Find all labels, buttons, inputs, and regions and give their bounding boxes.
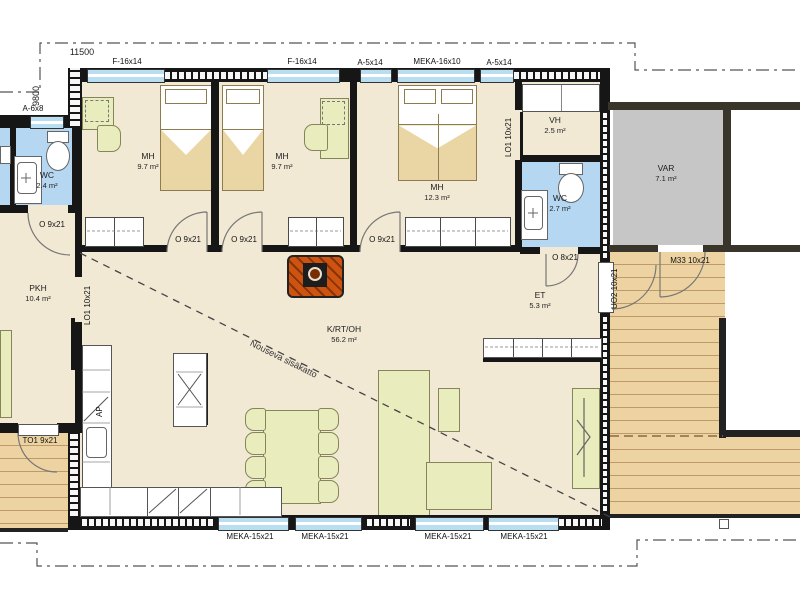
deck-left (0, 433, 68, 530)
desk-mh2-detail (322, 101, 345, 125)
chair-mh2 (304, 124, 328, 151)
pkh-slider-opening (75, 277, 82, 322)
closet-mh3 (405, 217, 511, 247)
var-wall-right (723, 102, 731, 252)
window-top-3 (360, 69, 392, 83)
room-label-krtoh: K/RT/OH 56.2 m² (316, 324, 372, 345)
dining-chair (318, 408, 339, 431)
closet-mh2 (288, 217, 344, 247)
room-name: VAR (640, 163, 692, 174)
deck-right-border (610, 514, 800, 518)
room-label-mh3: MH 12.3 m² (410, 182, 464, 203)
dishwasher-label: AP (95, 406, 104, 417)
room-name: MH (124, 151, 172, 162)
window-label-top-2: F-16x14 (272, 57, 332, 66)
window-label-bottom-4: MEKA-15x21 (492, 532, 556, 541)
door-label-pkh-slider: LO1 10x21 (83, 286, 92, 325)
toilet-bowl-left (46, 141, 70, 171)
wc-left-right-wall (72, 115, 82, 213)
side-table (438, 388, 460, 432)
insulation-bottom-3 (557, 517, 602, 528)
terrace-door-leaf (18, 424, 59, 436)
room-area: 7.1 m² (640, 174, 692, 184)
insulation-right-2 (601, 315, 609, 513)
insulation-bottom-1 (80, 517, 215, 528)
door-label-pkh: O 9x21 (30, 220, 74, 229)
door-label-wc-right: O 8x21 (543, 253, 587, 262)
room-area: 2.4 m² (23, 181, 71, 191)
vh-wc-wall (520, 155, 600, 162)
dining-chair (245, 456, 266, 479)
bed-mh3 (398, 85, 477, 181)
insulation-bottom-2 (365, 517, 410, 528)
kitchen-counter-left (82, 345, 112, 489)
door-label-terrace: TO1 9x21 (18, 436, 62, 445)
window-label-bottom-2: MEKA-15x21 (293, 532, 357, 541)
room-name: WC (536, 193, 584, 204)
room-area: 9.7 m² (124, 162, 172, 172)
closet-mh1 (85, 217, 144, 247)
floor-plan: 11500 9800 F-16x14 F-16x14 A-5x14 MEKA-1… (0, 0, 800, 600)
sofa-horizontal (426, 462, 492, 510)
window-label-top-3: A-5x14 (347, 58, 393, 67)
pkh-floor (0, 205, 82, 435)
deck-left-border (0, 528, 68, 532)
room-name: K/RT/OH (316, 324, 372, 335)
pillow (226, 89, 260, 104)
deck-edge-horizontal (719, 430, 800, 437)
stove-icon (303, 263, 327, 287)
window-label-top-1: F-16x14 (97, 57, 157, 66)
dining-chair (318, 456, 339, 479)
room-label-et: ET 5.3 m² (514, 290, 566, 311)
room-label-wc-left: WC 2.4 m² (23, 170, 71, 191)
dining-chair (318, 480, 339, 503)
window-label-left: A-6x8 (8, 104, 58, 113)
dimension-height: 9800 (31, 86, 41, 106)
insulation-top-2 (512, 70, 600, 81)
kitchen-island (173, 353, 207, 427)
bed-mh2 (222, 85, 264, 191)
room-label-vh: VH 2.5 m² (531, 115, 579, 136)
deck-left-side-wall (68, 433, 80, 518)
fireplace (287, 255, 344, 298)
window-top-2 (267, 69, 340, 83)
kitchen-appliance-2 (178, 487, 211, 517)
room-name: MH (258, 151, 306, 162)
door-label-mh3: O 9x21 (362, 235, 402, 244)
room-name: PKH (12, 283, 64, 294)
var-wall-top (608, 102, 800, 110)
window-bottom-1 (218, 517, 289, 531)
kitchen-appliance-1 (147, 487, 180, 517)
door-label-entry: UO2 10x21 (610, 269, 619, 309)
door-label-vh-slider: LO1 10x21 (504, 118, 513, 157)
exterior-wall-corner-nw (68, 68, 82, 128)
pkh-door-opening (28, 205, 68, 213)
tv-bench (572, 388, 600, 489)
room-area: 2.5 m² (531, 126, 579, 136)
room-label-wc-right: WC 2.7 m² (536, 193, 584, 214)
vh-slider-leaf (520, 112, 523, 160)
window-bottom-3 (415, 517, 484, 531)
kitchen-sink (86, 427, 107, 458)
window-top-5 (480, 69, 514, 83)
window-label-bottom-1: MEKA-15x21 (218, 532, 282, 541)
window-left-a6x8 (30, 116, 64, 129)
bed-mh1 (160, 85, 212, 191)
desk-mh1-detail (85, 100, 109, 122)
pillow (441, 89, 473, 104)
west-inner-wall-lower (75, 322, 82, 425)
door-label-var: M33 10x21 (664, 256, 716, 265)
window-label-top-4: MEKA-16x10 (405, 57, 469, 66)
deck-right-lower (610, 437, 800, 517)
pillow (165, 89, 207, 104)
mh2-mh3-wall (350, 82, 357, 245)
deck-right-upper (610, 252, 725, 437)
site-line-bottom (0, 540, 800, 566)
room-area: 2.7 m² (536, 204, 584, 214)
var-door-opening (658, 245, 703, 252)
pkh-bottom-wall-b (57, 423, 82, 433)
room-name: MH (410, 182, 464, 193)
dining-chair (318, 432, 339, 455)
bed-center-line (438, 114, 439, 180)
mh1-door-opening (167, 245, 207, 252)
sofa-vertical (378, 370, 430, 518)
window-top-1 (87, 69, 165, 83)
cut-fixture (0, 146, 11, 164)
window-top-4 (397, 69, 475, 83)
vh-shelf (522, 84, 600, 112)
room-label-var: VAR 7.1 m² (640, 163, 692, 184)
deck-edge-vertical (719, 318, 726, 438)
var-wall-bottom (608, 245, 800, 252)
mh1-mh2-wall (211, 82, 219, 245)
room-name: ET (514, 290, 566, 301)
pkh-slider-leaf (71, 318, 75, 370)
room-area: 12.3 m² (410, 193, 464, 203)
room-area: 56.2 m² (316, 335, 372, 345)
room-name: VH (531, 115, 579, 126)
pkh-bench (0, 330, 12, 418)
window-label-bottom-3: MEKA-15x21 (416, 532, 480, 541)
window-bottom-2 (295, 517, 362, 531)
room-area: 9.7 m² (258, 162, 306, 172)
window-bottom-4 (488, 517, 559, 531)
room-label-pkh: PKH 10.4 m² (12, 283, 64, 304)
deck-post (719, 519, 729, 529)
chair-mh1 (97, 125, 121, 152)
mh2-door-opening (222, 245, 262, 252)
room-name: WC (23, 170, 71, 181)
deck-void (725, 252, 800, 432)
et-wardrobe (483, 338, 602, 358)
room-label-mh1: MH 9.7 m² (124, 151, 172, 172)
door-label-mh2: O 9x21 (224, 235, 264, 244)
room-area: 5.3 m² (514, 301, 566, 311)
insulation-top-1 (163, 70, 267, 81)
pillow (404, 89, 436, 104)
pkh-bottom-wall-a (0, 423, 18, 433)
room-label-mh2: MH 9.7 m² (258, 151, 306, 172)
mh3-door-opening (360, 245, 400, 252)
room-area: 10.4 m² (12, 294, 64, 304)
dining-chair (245, 408, 266, 431)
dining-chair (245, 432, 266, 455)
insulation-right-1 (601, 112, 609, 260)
dimension-width: 11500 (60, 47, 104, 57)
door-label-mh1: O 9x21 (168, 235, 208, 244)
window-label-top-5: A-5x14 (476, 58, 522, 67)
